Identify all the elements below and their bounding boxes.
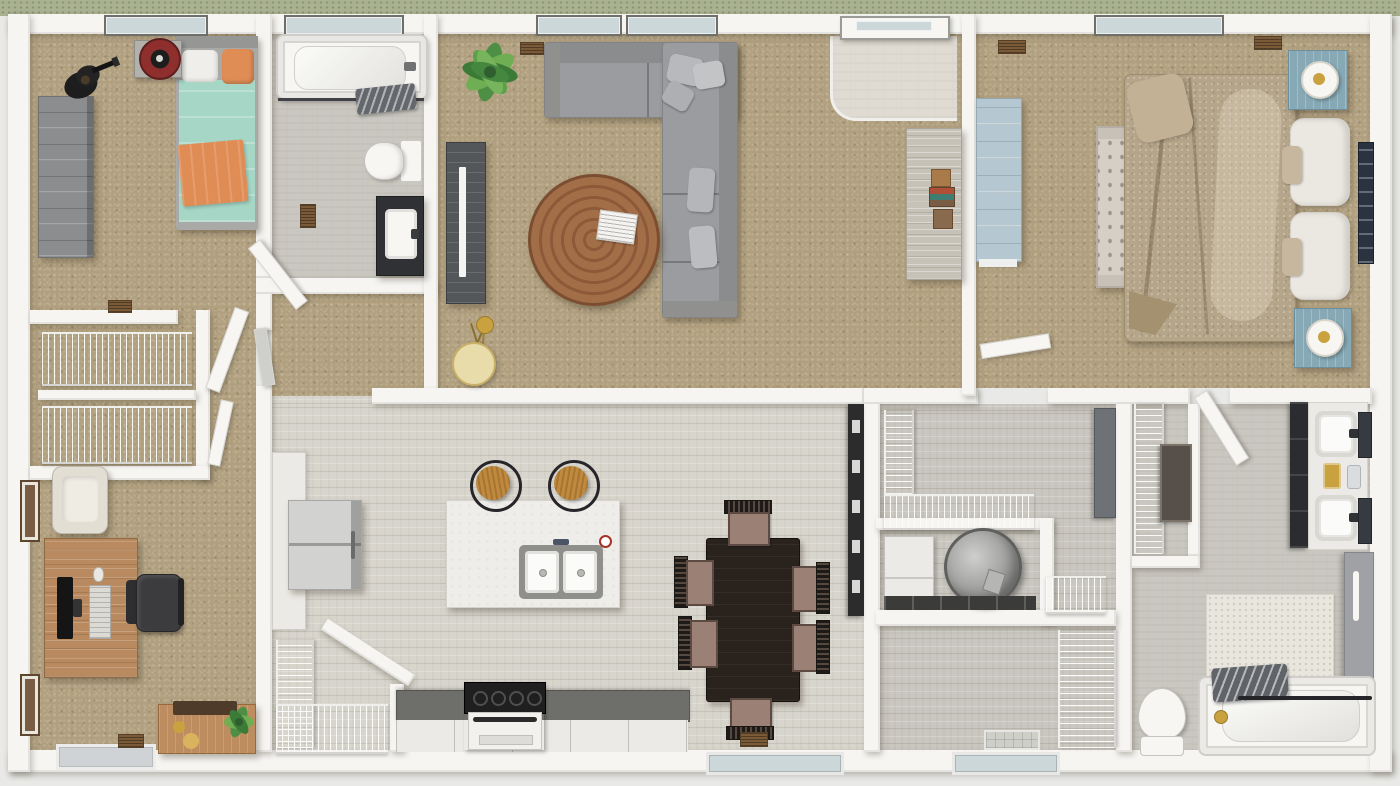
burner-2 bbox=[491, 691, 506, 706]
water-heater bbox=[944, 528, 1022, 606]
wall-wic-south bbox=[1132, 556, 1200, 568]
comforter-drape bbox=[1129, 291, 1177, 335]
drain-pan bbox=[884, 596, 1036, 610]
sink-faucet bbox=[411, 229, 419, 239]
tripod-floor-lamp bbox=[448, 310, 508, 380]
dining-chair-right-1 bbox=[792, 562, 828, 612]
speaker bbox=[139, 38, 181, 80]
cabinet-slot-1 bbox=[852, 420, 860, 433]
twin-bed bbox=[176, 36, 258, 230]
cabinet-slot-5 bbox=[852, 580, 860, 593]
tall-dark-cabinet bbox=[848, 404, 864, 616]
floor-vent-bedroom2 bbox=[108, 300, 132, 313]
nightstand-top bbox=[1288, 50, 1348, 110]
sofa-pillow-4 bbox=[686, 167, 715, 213]
table-decor-book-stack bbox=[929, 187, 955, 207]
floor-vent-hall-bath bbox=[300, 204, 316, 228]
mouse bbox=[93, 567, 104, 582]
window-bedroom-2 bbox=[104, 15, 208, 36]
sofa-table bbox=[906, 128, 962, 280]
dining-chair-left-2 bbox=[678, 616, 714, 668]
wall-laundry-north bbox=[864, 388, 978, 404]
wall-laundry-bath bbox=[1116, 404, 1132, 752]
heater-panel bbox=[982, 569, 1006, 595]
oven-handle bbox=[473, 717, 537, 722]
speaker-dot bbox=[156, 55, 163, 62]
toilet-bowl bbox=[1138, 688, 1186, 740]
office-chair-seat bbox=[136, 574, 182, 632]
wall-frame-2 bbox=[20, 674, 40, 736]
exterior-wall-left bbox=[8, 14, 30, 772]
headboard bbox=[176, 36, 258, 48]
wall-left-column-b bbox=[256, 386, 272, 752]
fridge bbox=[288, 500, 362, 590]
wic-dresser bbox=[1160, 444, 1192, 522]
tub-basin bbox=[294, 46, 406, 90]
wall-art bbox=[1358, 142, 1374, 264]
accent-pillow-bottom bbox=[1282, 238, 1302, 276]
closet-wire-shelf-upper bbox=[42, 332, 192, 386]
dining-chair-top bbox=[724, 500, 770, 542]
dresser-base bbox=[979, 259, 1017, 267]
floor-vent-primary-2 bbox=[1254, 36, 1282, 50]
wall-kitchen-north bbox=[372, 388, 864, 404]
floor-vent-living bbox=[520, 42, 544, 55]
toilet-bowl bbox=[364, 142, 404, 180]
front-door-glass bbox=[856, 21, 932, 31]
tv bbox=[459, 167, 466, 277]
window-primary-bedroom bbox=[1094, 15, 1224, 36]
dining-chair-left-1 bbox=[674, 556, 710, 606]
sofa-cushion-seam bbox=[647, 63, 649, 117]
laundry-wire-shelf-west bbox=[884, 410, 914, 494]
comforter-pillow-fold bbox=[1124, 71, 1195, 145]
accent-pillow-top bbox=[1282, 146, 1302, 184]
lamp-finial bbox=[476, 316, 494, 334]
faucet-red-handle bbox=[599, 535, 612, 548]
tub-faucet bbox=[1214, 710, 1228, 724]
floor-vent-primary-1 bbox=[998, 40, 1026, 54]
wall-frame-1 bbox=[20, 480, 40, 542]
table-decor-book-1 bbox=[931, 169, 951, 187]
washer bbox=[884, 536, 934, 604]
chair-seat bbox=[728, 512, 770, 546]
back-door-threshold bbox=[706, 752, 844, 775]
toiletry-items bbox=[1347, 465, 1361, 489]
orange-throw-blanket bbox=[177, 139, 248, 207]
gray-sliding-door bbox=[1344, 552, 1374, 696]
chair-back bbox=[816, 620, 830, 674]
mudroom-wire-closet bbox=[1058, 630, 1116, 748]
dresser-gray bbox=[38, 96, 94, 258]
vanity-cabinet bbox=[1290, 402, 1308, 548]
chair-seat bbox=[690, 620, 718, 668]
kitchen-island bbox=[446, 500, 620, 608]
pantry-wire-shelf-south bbox=[276, 704, 388, 754]
range bbox=[464, 682, 544, 750]
tub-faucet bbox=[404, 62, 416, 71]
primary-bed-comforter bbox=[1124, 74, 1296, 342]
sink-1-basin bbox=[1319, 415, 1353, 453]
wall-left-column-a bbox=[256, 294, 272, 330]
bar-stool-1-seat bbox=[476, 466, 510, 500]
console-decor-gold-2 bbox=[183, 733, 199, 749]
desk bbox=[44, 538, 138, 678]
mirror-1 bbox=[1358, 412, 1372, 458]
window-living-1 bbox=[536, 15, 622, 36]
vanity-sink-2 bbox=[1315, 495, 1357, 541]
burner-3 bbox=[509, 691, 524, 706]
vanity-sink-1 bbox=[1315, 411, 1357, 457]
table-lamp-finial bbox=[1313, 73, 1325, 85]
sink-drain-right bbox=[577, 569, 585, 577]
round-coffee-table bbox=[528, 174, 660, 306]
burner-4 bbox=[527, 691, 542, 706]
console-plant bbox=[218, 702, 260, 742]
sofa-pillow-5 bbox=[688, 225, 718, 269]
wall-living-primary bbox=[962, 14, 976, 396]
cabinet-slot-4 bbox=[852, 540, 860, 553]
front-door bbox=[840, 16, 950, 40]
mudroom-door-threshold bbox=[952, 752, 1060, 775]
toilet-hall-bath bbox=[362, 138, 422, 182]
office-chair bbox=[126, 568, 184, 636]
window-hall-bath bbox=[284, 15, 404, 36]
chair-seat bbox=[686, 560, 714, 606]
table-lamp-2-finial bbox=[1318, 331, 1330, 343]
dresser-front-edge bbox=[87, 97, 93, 257]
bar-stool-2-seat bbox=[554, 466, 588, 500]
bar-stool-1 bbox=[470, 460, 522, 512]
nightstand-bottom bbox=[1294, 308, 1352, 368]
sofa-armrest-bottom bbox=[663, 301, 737, 317]
sofa-pillow-2 bbox=[692, 60, 726, 91]
bar-stool-2 bbox=[548, 460, 600, 512]
orange-pillow bbox=[222, 49, 254, 84]
office-chair-arm bbox=[178, 578, 184, 626]
wall-closet-east bbox=[196, 310, 210, 480]
keyboard bbox=[89, 585, 111, 639]
toiletry-tray bbox=[1323, 463, 1341, 489]
monitor-stand bbox=[73, 599, 82, 617]
oven-front bbox=[468, 712, 542, 750]
shower-curtain-rod bbox=[1238, 696, 1372, 700]
floor-plan-rendering bbox=[0, 0, 1400, 786]
wall-closet-divider bbox=[38, 390, 196, 400]
cabinet-slot-2 bbox=[852, 460, 860, 473]
wall-kitchen-laundry bbox=[864, 404, 880, 752]
fridge-side-shade bbox=[351, 501, 361, 589]
magazine bbox=[596, 210, 638, 245]
dining-table bbox=[706, 538, 800, 702]
comforter-highlight bbox=[1209, 88, 1283, 323]
burner-1 bbox=[473, 691, 488, 706]
sink-drain-left bbox=[539, 569, 547, 577]
window-living-2 bbox=[626, 15, 718, 36]
wall-primary-south-a bbox=[1048, 388, 1190, 404]
floor-vent-office bbox=[118, 734, 144, 748]
laundry-wire-shelf bbox=[884, 494, 1034, 530]
guitar bbox=[52, 40, 122, 102]
washer-seam bbox=[885, 577, 933, 579]
sink-2-basin bbox=[1319, 499, 1353, 537]
toilet-tank bbox=[1140, 736, 1184, 756]
wall-bedroom2-south bbox=[30, 310, 178, 324]
mirror-2 bbox=[1358, 498, 1372, 544]
mudroom-mat bbox=[984, 730, 1040, 750]
monitor bbox=[57, 577, 73, 639]
sofa-armrest-left bbox=[545, 43, 560, 117]
vanity-hall-bath bbox=[376, 196, 424, 276]
console-decor-gold-1 bbox=[173, 721, 185, 733]
table-decor-book-2 bbox=[933, 209, 953, 229]
dresser-blue bbox=[976, 98, 1022, 262]
white-pillow bbox=[182, 50, 218, 82]
door-handle bbox=[1353, 571, 1359, 621]
cooktop bbox=[464, 682, 546, 714]
chair-back bbox=[816, 562, 830, 614]
closet-wire-shelf-lower bbox=[42, 406, 192, 464]
lamp-shade bbox=[452, 342, 496, 386]
laundry-wire-shelf-small bbox=[1046, 576, 1106, 614]
dining-chair-right-2 bbox=[792, 620, 828, 672]
entry-tile bbox=[830, 36, 957, 121]
cabinet-slot-3 bbox=[852, 500, 860, 513]
wall-bed2-bath bbox=[256, 14, 272, 278]
toilet-primary bbox=[1136, 688, 1186, 758]
oven-drawer bbox=[479, 735, 533, 745]
floor-vent-dining bbox=[740, 732, 768, 747]
gray-door-panel bbox=[1094, 408, 1116, 518]
armchair bbox=[52, 466, 108, 534]
island-faucet bbox=[553, 539, 569, 545]
tv-console bbox=[446, 142, 486, 304]
armchair-cushion bbox=[62, 476, 98, 522]
